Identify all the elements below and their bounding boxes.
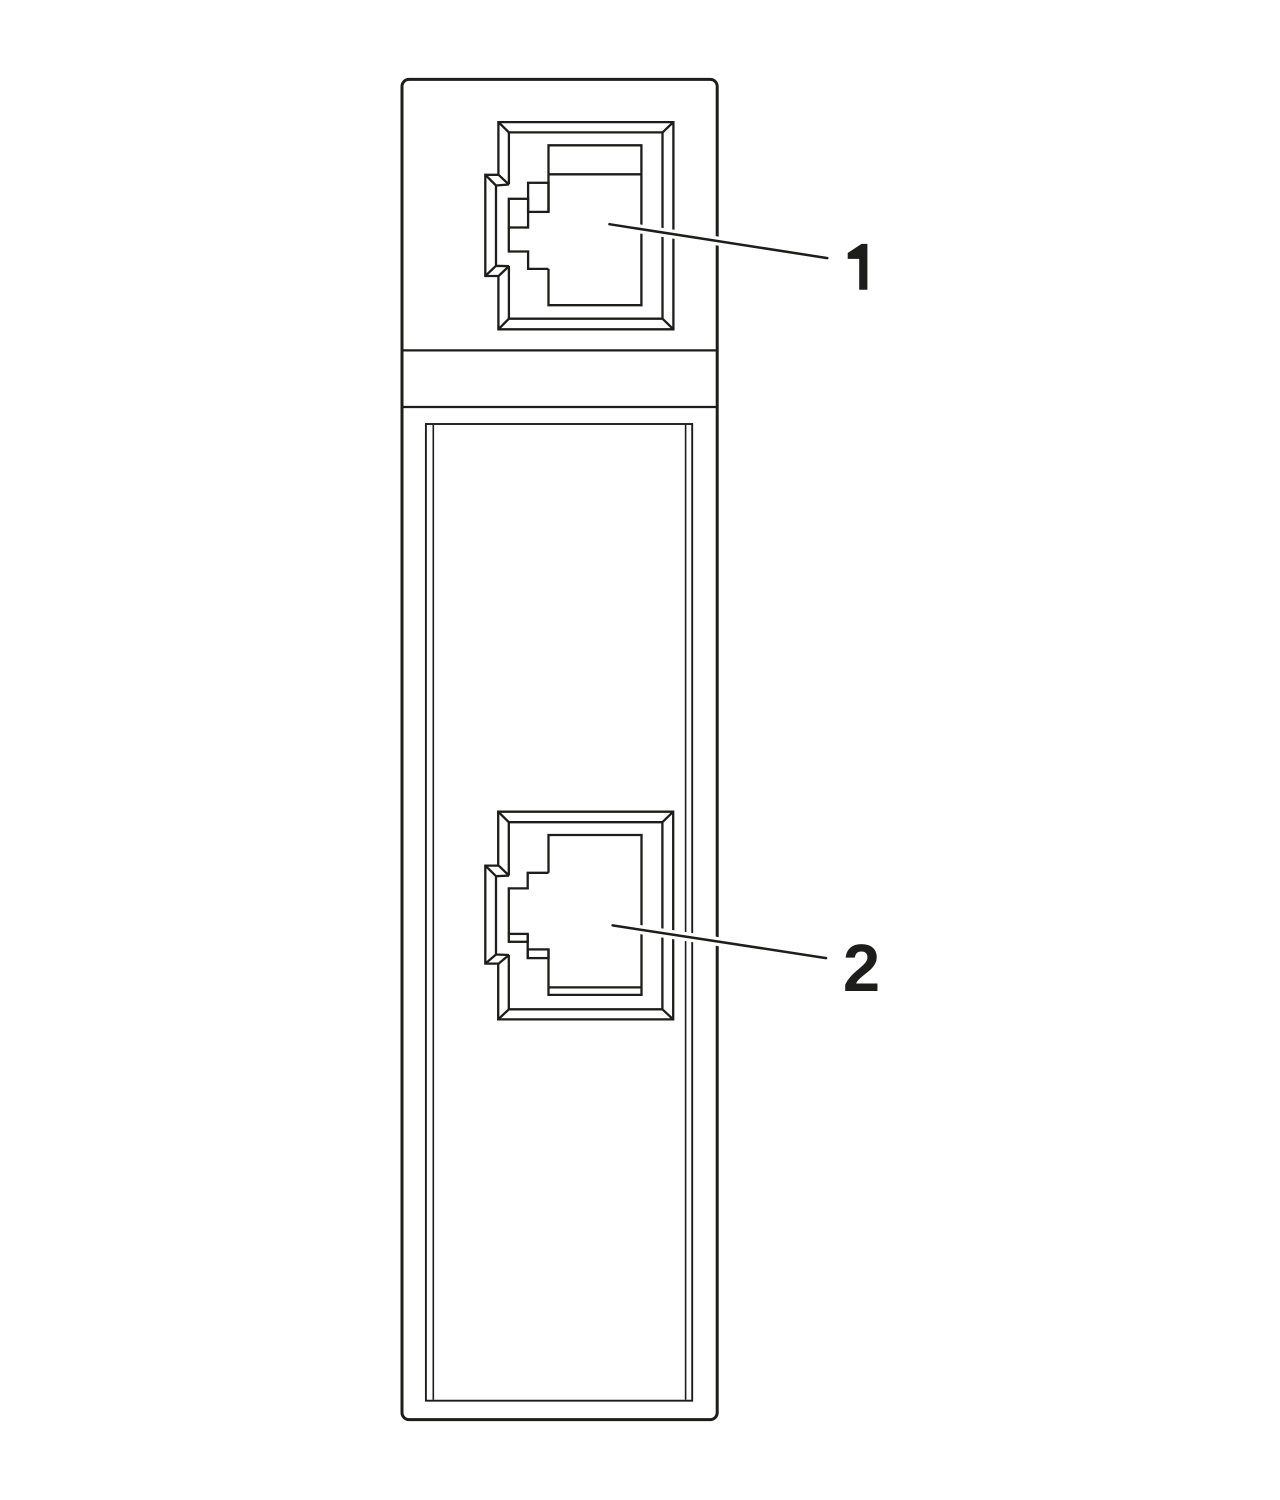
svg-text:2: 2	[843, 931, 880, 1006]
